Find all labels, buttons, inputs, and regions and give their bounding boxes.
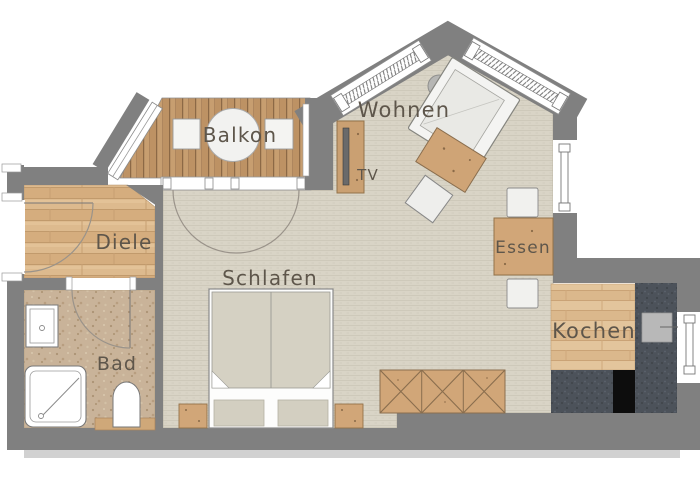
wood-knot — [444, 401, 446, 403]
balcony-seat-left — [173, 119, 200, 149]
tv-screen — [343, 128, 349, 185]
wall-right-lower — [553, 213, 577, 258]
window-glyph — [686, 322, 693, 367]
wood-knot — [354, 420, 356, 422]
window-cap — [559, 203, 570, 211]
shower-inner — [30, 371, 81, 422]
dining-wall-window — [553, 140, 577, 213]
nightstand-top — [335, 404, 363, 428]
wall-bottom-shadow — [24, 450, 680, 458]
door-tick — [163, 178, 171, 189]
nightstand-top — [179, 404, 207, 428]
nightstand-right — [335, 404, 363, 428]
door-jamb — [2, 193, 22, 201]
room-label-kochen: Kochen — [552, 319, 636, 343]
bathroom-sink — [26, 305, 58, 347]
door-tick — [205, 178, 213, 189]
door-opening — [4, 200, 25, 274]
wardrobe — [380, 370, 505, 413]
wall-diele-schlafen — [155, 185, 163, 428]
door-opening — [72, 278, 130, 290]
bed-pillow-left — [214, 400, 264, 426]
wall-diele-top — [7, 167, 108, 185]
bed-pillow-right — [278, 400, 328, 426]
double-bed — [209, 289, 333, 428]
wood-knot — [357, 133, 359, 135]
window-glyph — [561, 150, 568, 203]
wood-knot — [185, 409, 187, 411]
nightstand-left — [179, 404, 207, 428]
door-jamb — [66, 277, 72, 290]
floor-plan: Balkon Wohnen TV Diele Schlafen Bad Esse… — [0, 0, 700, 500]
room-label-balkon: Balkon — [203, 123, 278, 147]
dining-chair-top — [507, 188, 538, 217]
window-cap — [684, 366, 695, 374]
balcony-side-window — [303, 104, 309, 176]
kitchen-counter-right — [635, 283, 677, 413]
kitchen-wall-window — [677, 312, 700, 383]
door-tick — [231, 178, 239, 189]
room-label-schlafen: Schlafen — [222, 266, 318, 290]
room-label-wohnen: Wohnen — [358, 98, 450, 122]
room-label-tv: TV — [356, 166, 379, 184]
room-label-essen: Essen — [495, 238, 551, 258]
window-cap — [684, 315, 695, 323]
wood-knot — [504, 263, 506, 265]
floor-plan-svg: Balkon Wohnen TV Diele Schlafen Bad Esse… — [0, 0, 700, 500]
toilet — [113, 382, 140, 427]
room-label-diele: Diele — [95, 230, 152, 254]
stove — [613, 370, 635, 413]
room-label-bad: Bad — [97, 353, 137, 375]
window-cap — [559, 144, 570, 152]
wood-knot — [341, 409, 343, 411]
door-jamb — [130, 277, 136, 290]
wall-kitchen-top — [553, 258, 700, 283]
shower — [25, 366, 86, 427]
wood-knot — [531, 230, 533, 232]
wall-kitchen-right-upper — [677, 283, 700, 312]
wood-knot — [198, 420, 200, 422]
door-tick — [297, 178, 305, 189]
door-jamb — [2, 273, 22, 281]
wood-knot — [486, 377, 488, 379]
kitchen-counter-bottom — [551, 370, 613, 413]
wood-knot — [397, 379, 399, 381]
wall-kitchen-right-lower — [677, 383, 700, 413]
sink-basin — [30, 309, 54, 343]
door-jamb — [2, 164, 21, 172]
dining-chair-bottom — [507, 279, 538, 308]
